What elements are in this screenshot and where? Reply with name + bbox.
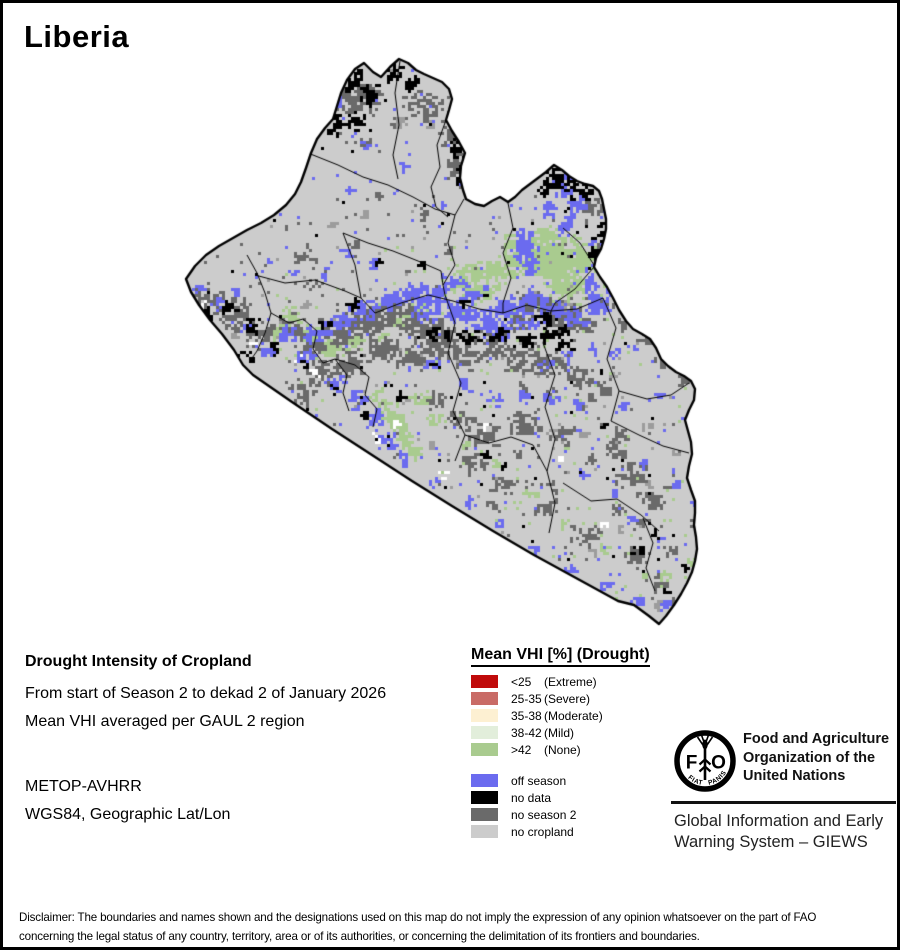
sensor-label: METOP-AVHRR [25,778,142,796]
legend-row-no-data: no data [471,791,650,804]
fao-logo-icon: F O FIAT PANIS [673,729,737,793]
legend: Mean VHI [%] (Drought) <25 (Extreme) 25-… [471,646,650,842]
legend-label: no season 2 [511,808,576,822]
liberia-drought-map [3,3,900,648]
giews-name: Global Information and Early Warning Sys… [674,811,883,853]
legend-value: <25 [511,675,544,689]
disclaimer-line: Disclaimer: The boundaries and names sho… [19,911,816,924]
brand-divider [671,801,896,804]
legend-row-mild: 38-42 (Mild) [471,726,650,739]
legend-row-extreme: <25 (Extreme) [471,675,650,688]
legend-row-no-season-2: no season 2 [471,808,650,821]
legend-qualifier: (Mild) [544,726,574,740]
legend-qualifier: (Extreme) [544,675,597,689]
disclaimer-text: Disclaimer: The boundaries and names sho… [19,908,887,946]
legend-swatch-severe [471,692,498,705]
legend-label: off season [511,774,566,788]
legend-qualifier: (None) [544,743,581,757]
org-name-line: United Nations [743,768,845,784]
legend-swatch-no-cropland [471,825,498,838]
legend-qualifier: (Moderate) [544,709,603,723]
legend-group-gap [471,760,650,774]
legend-qualifier: (Severe) [544,692,590,706]
legend-row-moderate: 35-38 (Moderate) [471,709,650,722]
legend-swatch-mild [471,726,498,739]
map-period-line: From start of Season 2 to dekad 2 of Jan… [25,685,386,703]
legend-value: >42 [511,743,544,757]
fao-org-name: Food and Agriculture Organization of the… [743,730,889,786]
legend-swatch-off-season [471,774,498,787]
legend-label: no cropland [511,825,574,839]
projection-label: WGS84, Geographic Lat/Lon [25,806,230,824]
legend-value: 38-42 [511,726,544,740]
fao-logo-letter-f: F [686,753,698,774]
disclaimer-line: concerning the legal status of any count… [19,930,700,943]
legend-row-none: >42 (None) [471,743,650,756]
map-subject-heading: Drought Intensity of Cropland [25,653,252,671]
legend-row-no-cropland: no cropland [471,825,650,838]
giews-line: Global Information and Early [674,812,883,830]
org-name-line: Organization of the [743,750,875,766]
org-name-line: Food and Agriculture [743,731,889,747]
legend-label: no data [511,791,551,805]
page-title: Liberia [24,19,129,55]
legend-swatch-no-data [471,791,498,804]
legend-swatch-moderate [471,709,498,722]
legend-swatch-no-season-2 [471,808,498,821]
legend-row-off-season: off season [471,774,650,787]
legend-title: Mean VHI [%] (Drought) [471,646,650,667]
page: Liberia Drought Intensity of Cropland Fr… [0,0,900,950]
legend-row-severe: 25-35 (Severe) [471,692,650,705]
legend-value: 35-38 [511,709,544,723]
giews-line: Warning System – GIEWS [674,833,868,851]
legend-swatch-extreme [471,675,498,688]
legend-value: 25-35 [511,692,544,706]
map-method-line: Mean VHI averaged per GAUL 2 region [25,713,305,731]
legend-swatch-none [471,743,498,756]
